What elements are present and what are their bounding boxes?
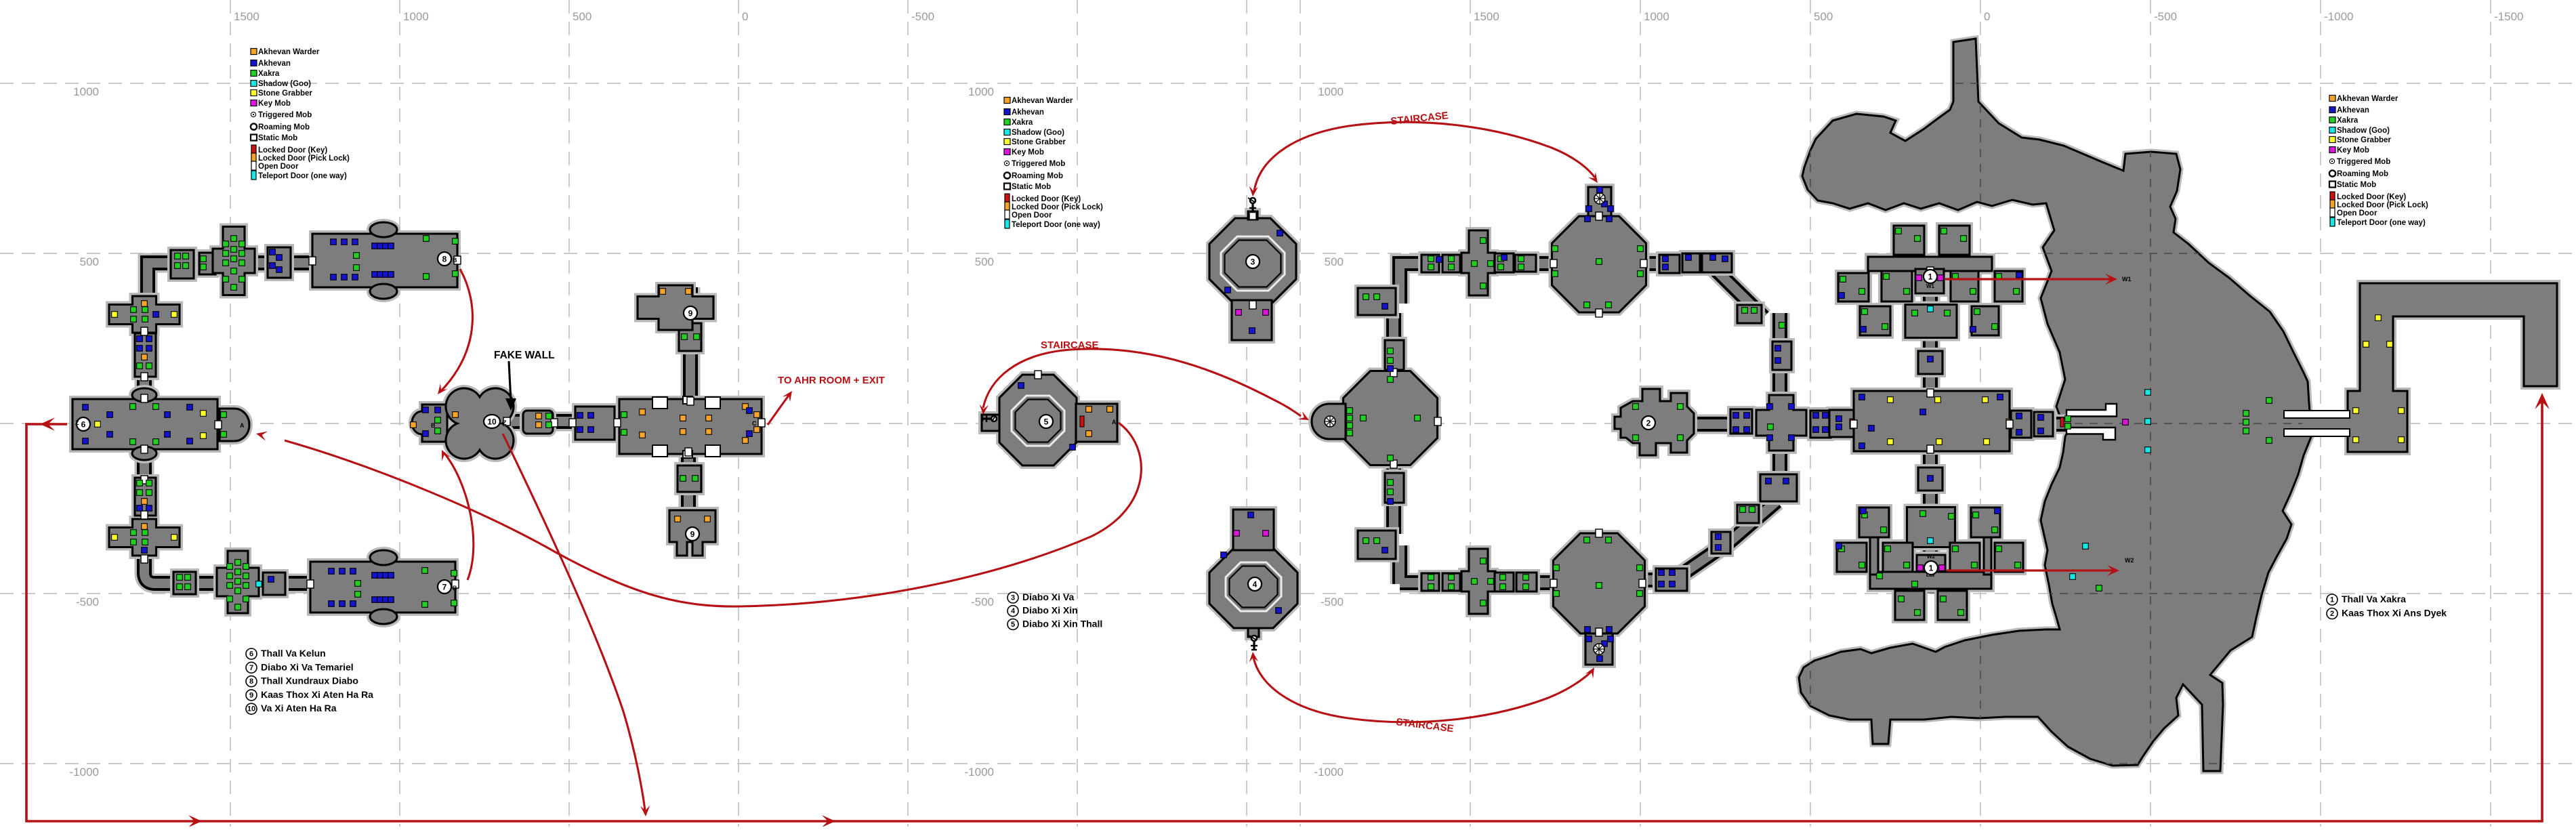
svg-text:Diabo Xi Xin: Diabo Xi Xin [1022, 605, 1078, 616]
svg-text:9: 9 [690, 529, 695, 539]
svg-text:A: A [1112, 419, 1117, 426]
svg-text:0: 0 [1984, 10, 1990, 23]
svg-text:A: A [240, 422, 245, 429]
svg-text:7: 7 [442, 582, 447, 592]
svg-text:7: 7 [249, 664, 253, 672]
svg-text:Z: Z [75, 419, 79, 426]
svg-text:1500: 1500 [234, 10, 259, 23]
svg-text:-1000: -1000 [70, 766, 99, 779]
svg-text:-500: -500 [971, 596, 994, 608]
svg-text:-1500: -1500 [2494, 10, 2523, 23]
svg-text:6: 6 [249, 650, 253, 659]
svg-text:1: 1 [1929, 563, 1934, 573]
svg-text:0: 0 [742, 10, 748, 23]
svg-text:B: B [453, 585, 457, 592]
svg-text:1000: 1000 [968, 85, 994, 98]
svg-text:1000: 1000 [403, 10, 429, 23]
svg-text:W2: W2 [1927, 554, 1936, 560]
svg-text:Diabo Xi Va Temariel: Diabo Xi Va Temariel [261, 661, 354, 672]
svg-text:Z: Z [503, 419, 507, 426]
svg-text:W1: W1 [1926, 283, 1935, 289]
svg-text:-1000: -1000 [2324, 10, 2353, 23]
svg-text:Kaas Thox Xi Aten Ha Ra: Kaas Thox Xi Aten Ha Ra [261, 689, 373, 700]
svg-text:B: B [453, 257, 457, 264]
svg-text:Diabo Xi Xin Thall: Diabo Xi Xin Thall [1022, 618, 1102, 629]
svg-text:1000: 1000 [73, 85, 99, 98]
svg-text:10: 10 [487, 417, 497, 426]
svg-text:Thall Xundraux Diabo: Thall Xundraux Diabo [261, 676, 358, 686]
svg-text:9: 9 [249, 691, 253, 699]
svg-text:-1000: -1000 [1314, 766, 1344, 779]
svg-text:6: 6 [81, 419, 86, 429]
svg-text:3: 3 [1011, 594, 1015, 602]
svg-text:8: 8 [249, 678, 253, 686]
svg-text:STAIRCASE: STAIRCASE [1041, 339, 1099, 351]
svg-text:4: 4 [1253, 579, 1258, 589]
svg-text:Diabo Xi Va: Diabo Xi Va [1022, 592, 1074, 602]
svg-text:W2: W2 [2125, 557, 2134, 564]
svg-text:B: B [431, 422, 436, 429]
svg-text:TO AHR ROOM + EXIT: TO AHR ROOM + EXIT [778, 375, 885, 386]
svg-text:5: 5 [1044, 417, 1049, 426]
svg-text:500: 500 [1814, 10, 1833, 23]
svg-text:500: 500 [80, 255, 99, 268]
svg-text:C: C [752, 420, 757, 427]
svg-text:-500: -500 [76, 596, 99, 608]
svg-text:500: 500 [573, 10, 591, 23]
svg-text:-500: -500 [911, 10, 934, 23]
svg-text:1500: 1500 [1474, 10, 1499, 23]
svg-text:3: 3 [1251, 257, 1255, 266]
svg-text:Va Xi Aten Ha Ra: Va Xi Aten Ha Ra [261, 703, 337, 713]
svg-text:Thall Va Kelun: Thall Va Kelun [261, 648, 326, 659]
svg-text:4: 4 [1011, 607, 1016, 615]
svg-text:8: 8 [442, 254, 447, 264]
svg-text:9: 9 [688, 308, 693, 318]
svg-text:1000: 1000 [1644, 10, 1669, 23]
svg-text:5: 5 [1011, 621, 1015, 629]
svg-text:2: 2 [2330, 610, 2334, 618]
svg-text:W1: W1 [2122, 276, 2132, 283]
svg-text:-500: -500 [2154, 10, 2177, 23]
svg-text:500: 500 [975, 255, 994, 268]
svg-text:Kaas Thox Xi Ans Dyek: Kaas Thox Xi Ans Dyek [2342, 608, 2447, 619]
svg-text:500: 500 [1325, 255, 1344, 268]
svg-text:2: 2 [1646, 418, 1651, 428]
svg-text:Thall Va Xakra: Thall Va Xakra [2342, 594, 2406, 604]
svg-text:1: 1 [2330, 596, 2334, 604]
svg-text:-500: -500 [1321, 596, 1344, 608]
svg-text:FAKE WALL: FAKE WALL [494, 350, 555, 361]
svg-text:1000: 1000 [1318, 85, 1344, 98]
svg-text:-1000: -1000 [965, 766, 994, 779]
svg-text:10: 10 [247, 705, 255, 713]
svg-text:1: 1 [1928, 272, 1933, 281]
